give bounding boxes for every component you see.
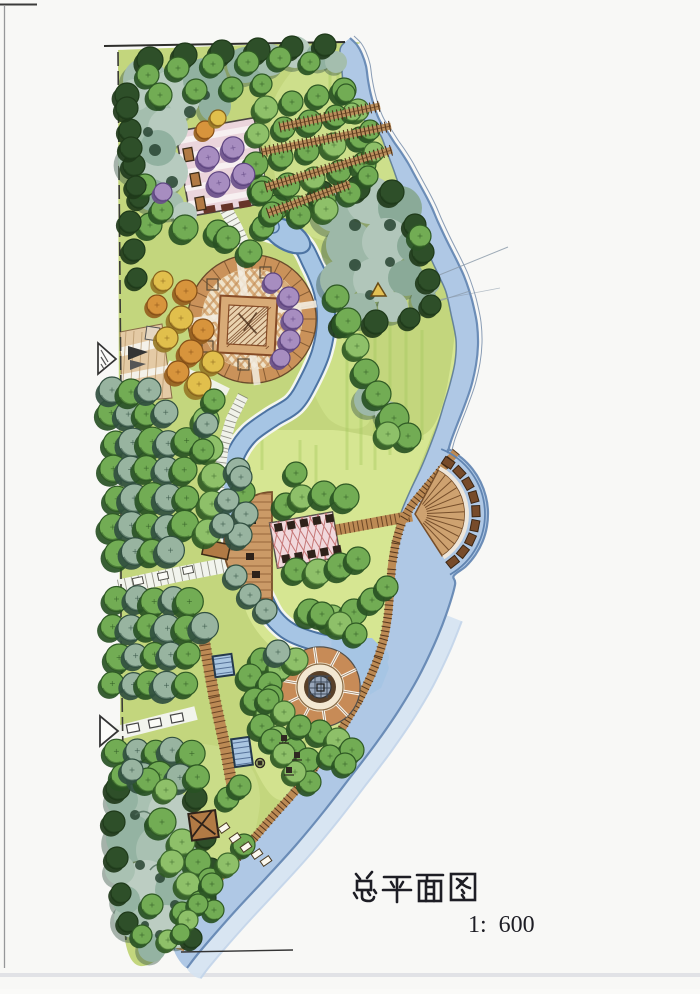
svg-text:1: 600: 1: 600 bbox=[468, 912, 535, 938]
